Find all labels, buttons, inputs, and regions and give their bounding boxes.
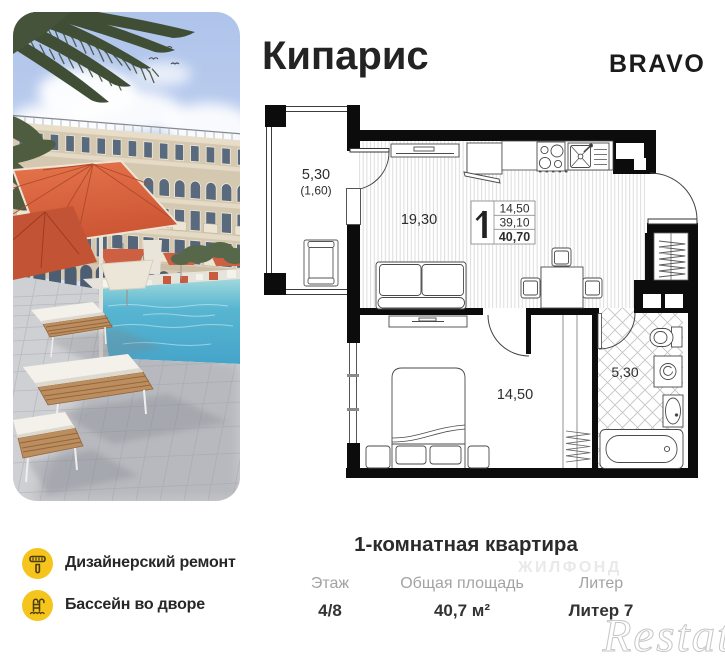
svg-text:14,50: 14,50 xyxy=(497,387,533,403)
svg-text:5,30: 5,30 xyxy=(302,167,330,183)
svg-text:14,50: 14,50 xyxy=(499,201,529,215)
svg-text:39,10: 39,10 xyxy=(499,215,529,229)
svg-text:40,70: 40,70 xyxy=(499,230,530,244)
svg-text:5,30: 5,30 xyxy=(611,364,638,380)
svg-text:19,30: 19,30 xyxy=(401,212,437,228)
svg-text:(1,60): (1,60) xyxy=(300,184,331,198)
